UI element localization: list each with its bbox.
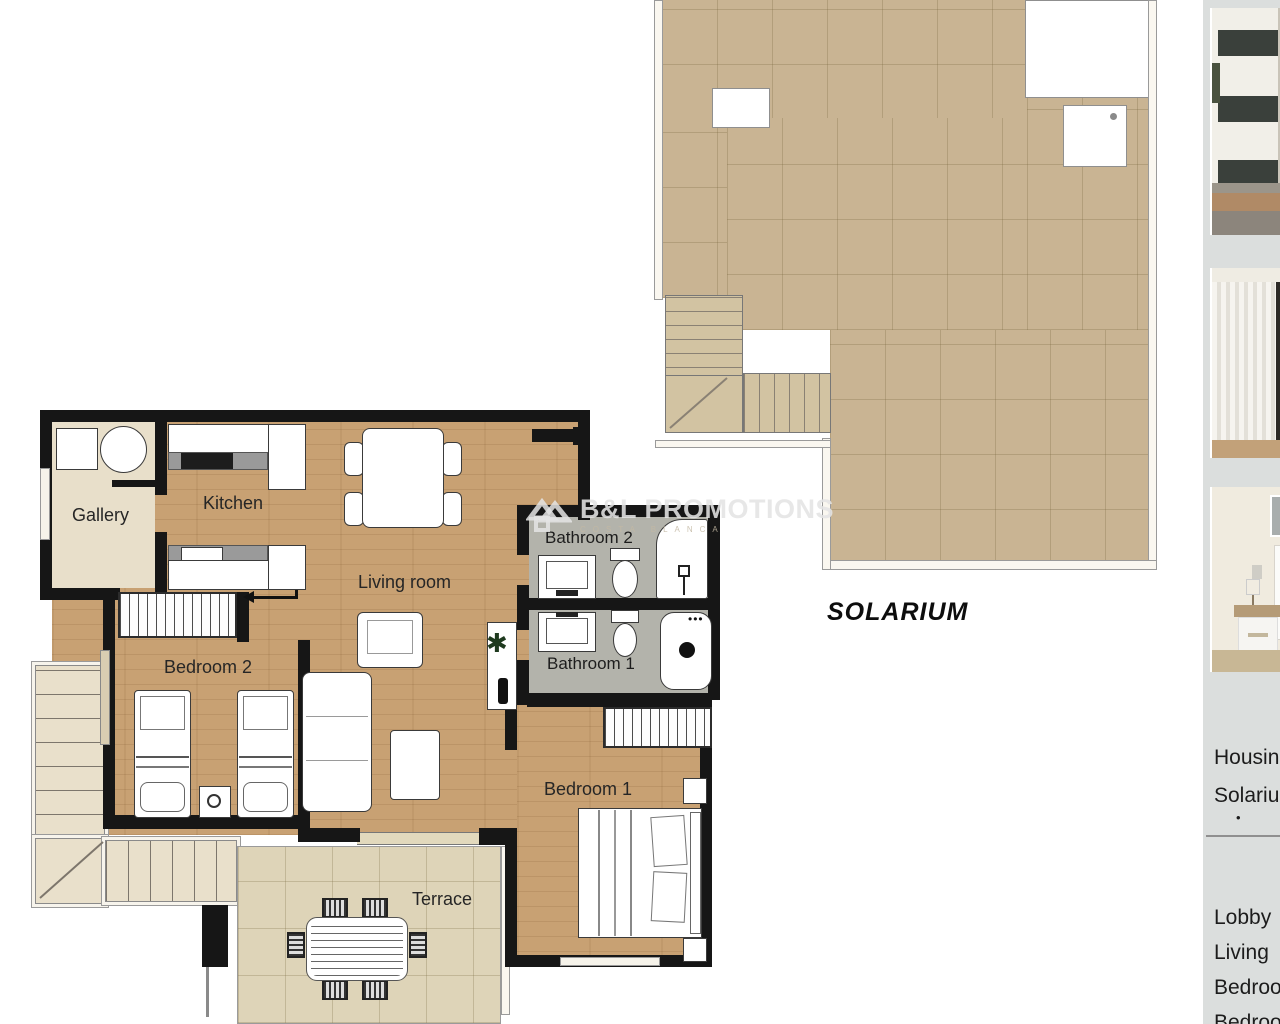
kitchen-tall-cabinet: [268, 545, 306, 590]
light-switch: [1252, 565, 1262, 579]
sidebar-item-bedroom: Bedroom: [1214, 976, 1280, 1000]
bed-blanket-fold: [598, 810, 600, 936]
entrance-door-hinge: [573, 427, 587, 445]
exterior-stairs-landing: [35, 838, 105, 904]
washing-machine: [56, 428, 98, 470]
bath-faucet-pipe: [683, 577, 685, 595]
outdoor-chair: [362, 898, 388, 918]
entry-arrow: [252, 596, 298, 599]
toilet-bowl: [613, 623, 637, 657]
wall: [517, 585, 529, 630]
bed-blanket-fold: [614, 810, 616, 936]
nightstand: [683, 938, 707, 962]
balcony-band: [1218, 96, 1280, 122]
solarium-stair-head-room: [1063, 105, 1127, 167]
tree: [1212, 63, 1220, 103]
room-label-solarium: SOLARIUM: [827, 598, 968, 627]
sofa: [302, 672, 372, 812]
sink-tap: [556, 590, 578, 596]
gallery-shelf: [112, 480, 157, 487]
dining-table: [362, 428, 444, 528]
sidebar-item-bedroom2: Bedroom: [1214, 1011, 1280, 1024]
wall: [527, 693, 708, 707]
outdoor-chair: [322, 980, 348, 1000]
thumbnail-building-exterior[interactable]: [1210, 8, 1280, 235]
toilet-tank: [611, 610, 639, 623]
room-label-bathroom2: Bathroom 2: [545, 528, 633, 548]
solarium-roof-notch: [1025, 0, 1155, 98]
solarium-tiles: [727, 118, 1027, 330]
sink-basin: [546, 618, 588, 644]
outdoor-chair: [287, 932, 305, 958]
solarium-top-notch: [712, 88, 770, 128]
sidebar-bullet: •: [1236, 810, 1241, 825]
lamp: [1246, 579, 1260, 595]
ground: [1212, 211, 1280, 235]
sofa-cushion-line: [306, 716, 368, 717]
water-boiler: [100, 426, 147, 473]
curtain: [1212, 282, 1276, 440]
terrace-pillar: [202, 905, 228, 967]
bed-pillow: [140, 696, 185, 730]
room-label-gallery: Gallery: [72, 505, 129, 526]
dining-chair: [344, 442, 364, 476]
floor: [1212, 650, 1280, 672]
dining-chair: [442, 492, 462, 526]
kitchen-tall-cabinet: [268, 424, 306, 490]
solarium-wall: [655, 440, 831, 448]
bed-blanket-line: [239, 756, 292, 758]
armchair-seat: [367, 620, 413, 654]
outdoor-chair: [362, 980, 388, 1000]
bed-pillow: [243, 696, 288, 730]
outdoor-table: [307, 918, 407, 980]
bed-blanket-line: [239, 766, 292, 768]
cooktop: [181, 453, 233, 469]
bed-pillow: [651, 871, 688, 923]
room-label-kitchen: Kitchen: [203, 493, 263, 514]
sink-tap: [556, 612, 578, 617]
sidebar-item-solarium: Solarium: [1214, 784, 1280, 808]
outdoor-chair: [322, 898, 348, 918]
kitchen-sink: [181, 547, 223, 561]
bed-blanket-line: [136, 766, 189, 768]
dining-chair: [442, 442, 462, 476]
solarium-stairs: [665, 295, 743, 383]
nightstand-top: [1234, 605, 1280, 617]
bath-faucet: [678, 565, 690, 577]
toilet-bowl: [612, 560, 638, 598]
wall: [517, 505, 720, 517]
window-frame: [1276, 282, 1280, 440]
wall: [155, 532, 167, 592]
solarium-stairs: [743, 373, 831, 433]
nightstand-knob: [207, 794, 221, 808]
window: [560, 957, 660, 966]
room-label-bathroom1: Bathroom 1: [547, 654, 635, 674]
room-label-terrace: Terrace: [412, 889, 472, 910]
sidebar-item-living: Living: [1214, 941, 1269, 965]
solarium-wall: [1148, 0, 1157, 568]
window: [100, 650, 110, 745]
bed-headboard: [690, 812, 701, 934]
bed-footboard: [140, 782, 185, 812]
wall: [517, 660, 529, 705]
solarium-wall: [822, 438, 831, 570]
solarium-wall: [654, 0, 663, 300]
wood-floor: [1212, 440, 1280, 458]
balcony-band: [1218, 30, 1280, 56]
exterior-stairs-horizontal: [105, 840, 237, 902]
bed-pillow: [650, 815, 687, 867]
thumbnail-bedroom-furniture[interactable]: [1210, 487, 1280, 672]
room-label-bedroom1: Bedroom 1: [544, 779, 632, 800]
wall-art: [1270, 495, 1280, 537]
thumbnail-interior-curtains[interactable]: [1210, 268, 1280, 458]
sliding-door-open: [357, 832, 479, 845]
brick-path: [1212, 193, 1280, 211]
wall: [40, 410, 590, 422]
door-knob-dot: [1110, 113, 1117, 120]
bed-blanket-fold: [630, 810, 632, 936]
dining-chair: [344, 492, 364, 526]
entry-arrow-head: [243, 591, 254, 603]
wardrobe: [118, 592, 237, 638]
room-label-bedroom2: Bedroom 2: [164, 657, 252, 678]
wall: [517, 517, 529, 555]
shower-drain: [679, 642, 695, 658]
railing-line: [206, 967, 209, 1017]
floor-plan-page: ✱ •••: [0, 0, 1280, 1024]
shower-tap-dots: •••: [688, 612, 704, 626]
solarium-wall: [822, 560, 1157, 570]
outdoor-chair: [409, 932, 427, 958]
wall: [298, 828, 360, 842]
sidebar-item-lobby: Lobby: [1214, 906, 1271, 930]
exterior-stairs-vertical: [35, 665, 105, 840]
solarium-tiles: [662, 118, 727, 298]
bed-footboard: [243, 782, 288, 812]
drawer-handle: [1248, 633, 1268, 637]
solarium-stair-landing: [665, 375, 743, 433]
ground-path: [1212, 183, 1280, 193]
plant-icon: ✱: [486, 628, 508, 659]
bed-blanket-line: [136, 756, 189, 758]
window: [40, 468, 50, 540]
room-label-living: Living room: [358, 572, 451, 593]
nightstand: [683, 778, 707, 804]
solarium-tiles: [830, 330, 1155, 565]
sidebar-divider: [1206, 835, 1280, 837]
bathtub: [656, 519, 708, 599]
wardrobe: [603, 707, 712, 748]
balcony-band: [1218, 160, 1278, 184]
sidebar-item-housing: Housing: [1214, 746, 1280, 770]
bottle-icon: [498, 678, 508, 704]
wall: [505, 835, 517, 967]
sink-basin: [546, 561, 588, 589]
wall: [527, 598, 708, 610]
sofa-cushion-line: [306, 760, 368, 761]
coffee-table: [390, 730, 440, 800]
